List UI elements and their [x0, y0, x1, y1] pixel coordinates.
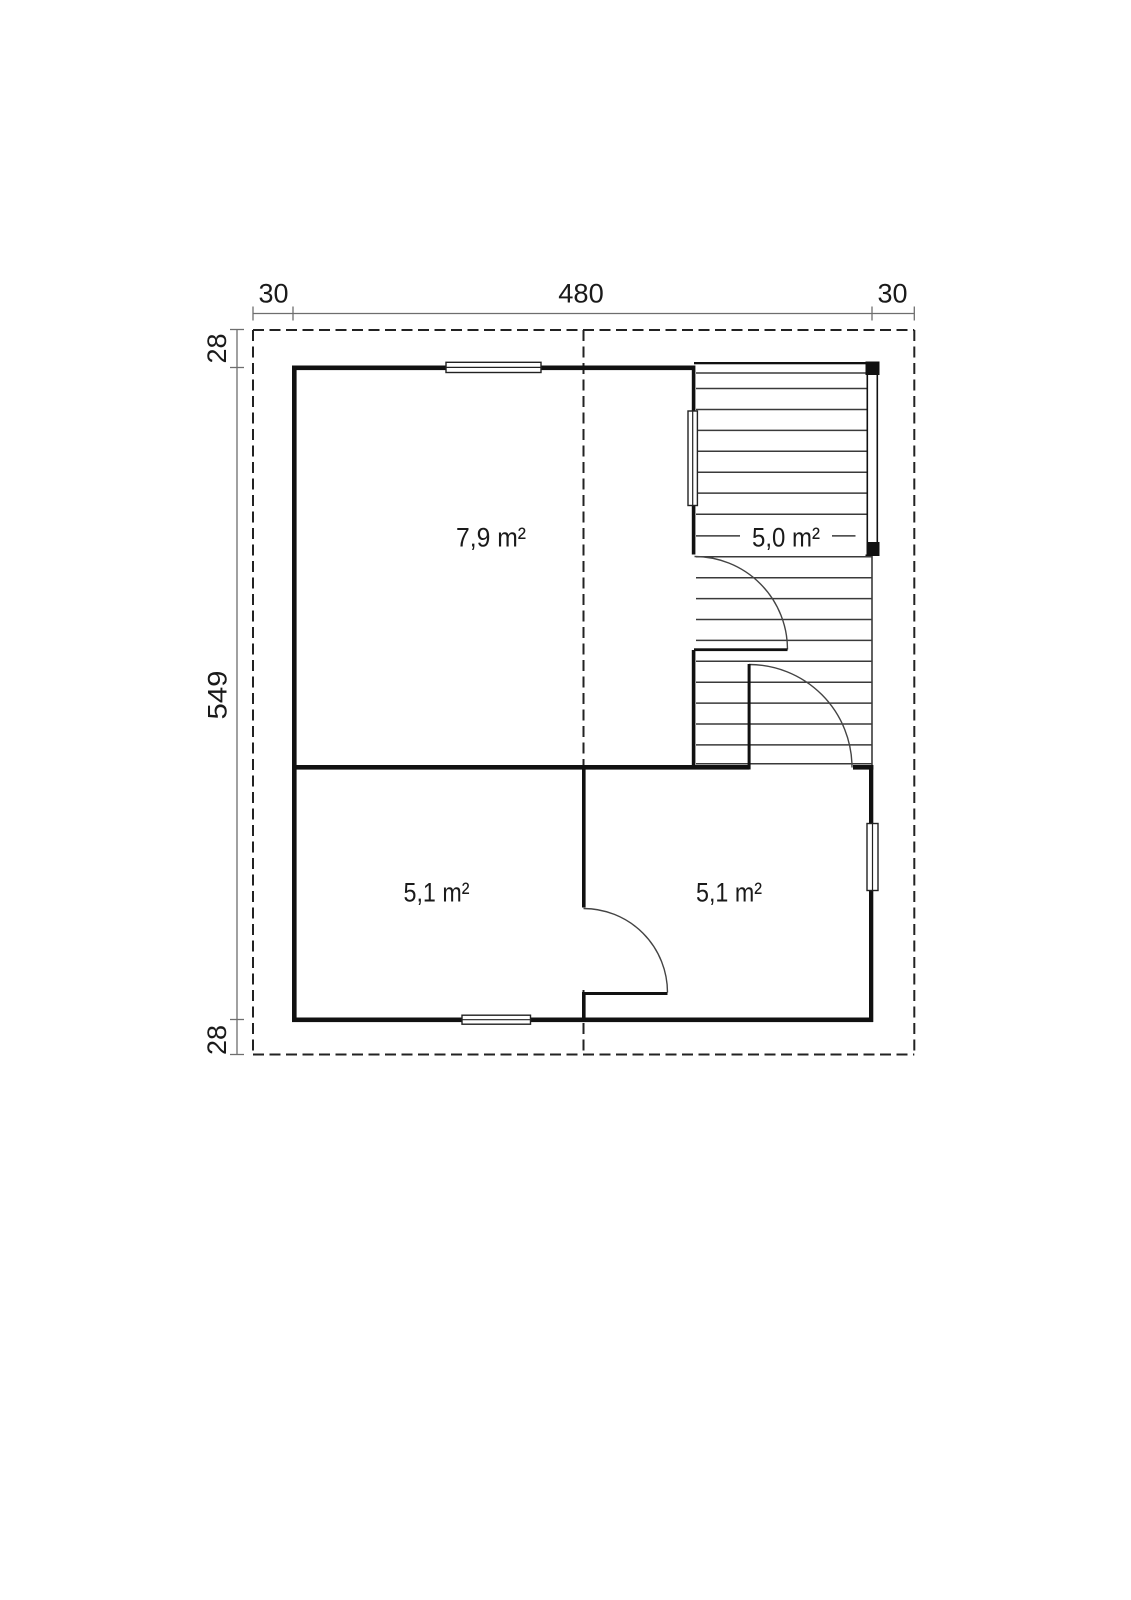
svg-text:30: 30 [877, 279, 907, 309]
svg-text:549: 549 [203, 671, 233, 720]
svg-text:28: 28 [202, 1025, 232, 1055]
svg-text:7,9 m²: 7,9 m² [456, 523, 526, 553]
svg-text:5,0 m²: 5,0 m² [752, 523, 820, 553]
svg-text:30: 30 [258, 279, 288, 309]
svg-text:28: 28 [202, 333, 232, 363]
svg-text:5,1 m²: 5,1 m² [696, 878, 762, 908]
svg-text:480: 480 [558, 279, 604, 309]
svg-text:5,1 m²: 5,1 m² [404, 878, 470, 908]
